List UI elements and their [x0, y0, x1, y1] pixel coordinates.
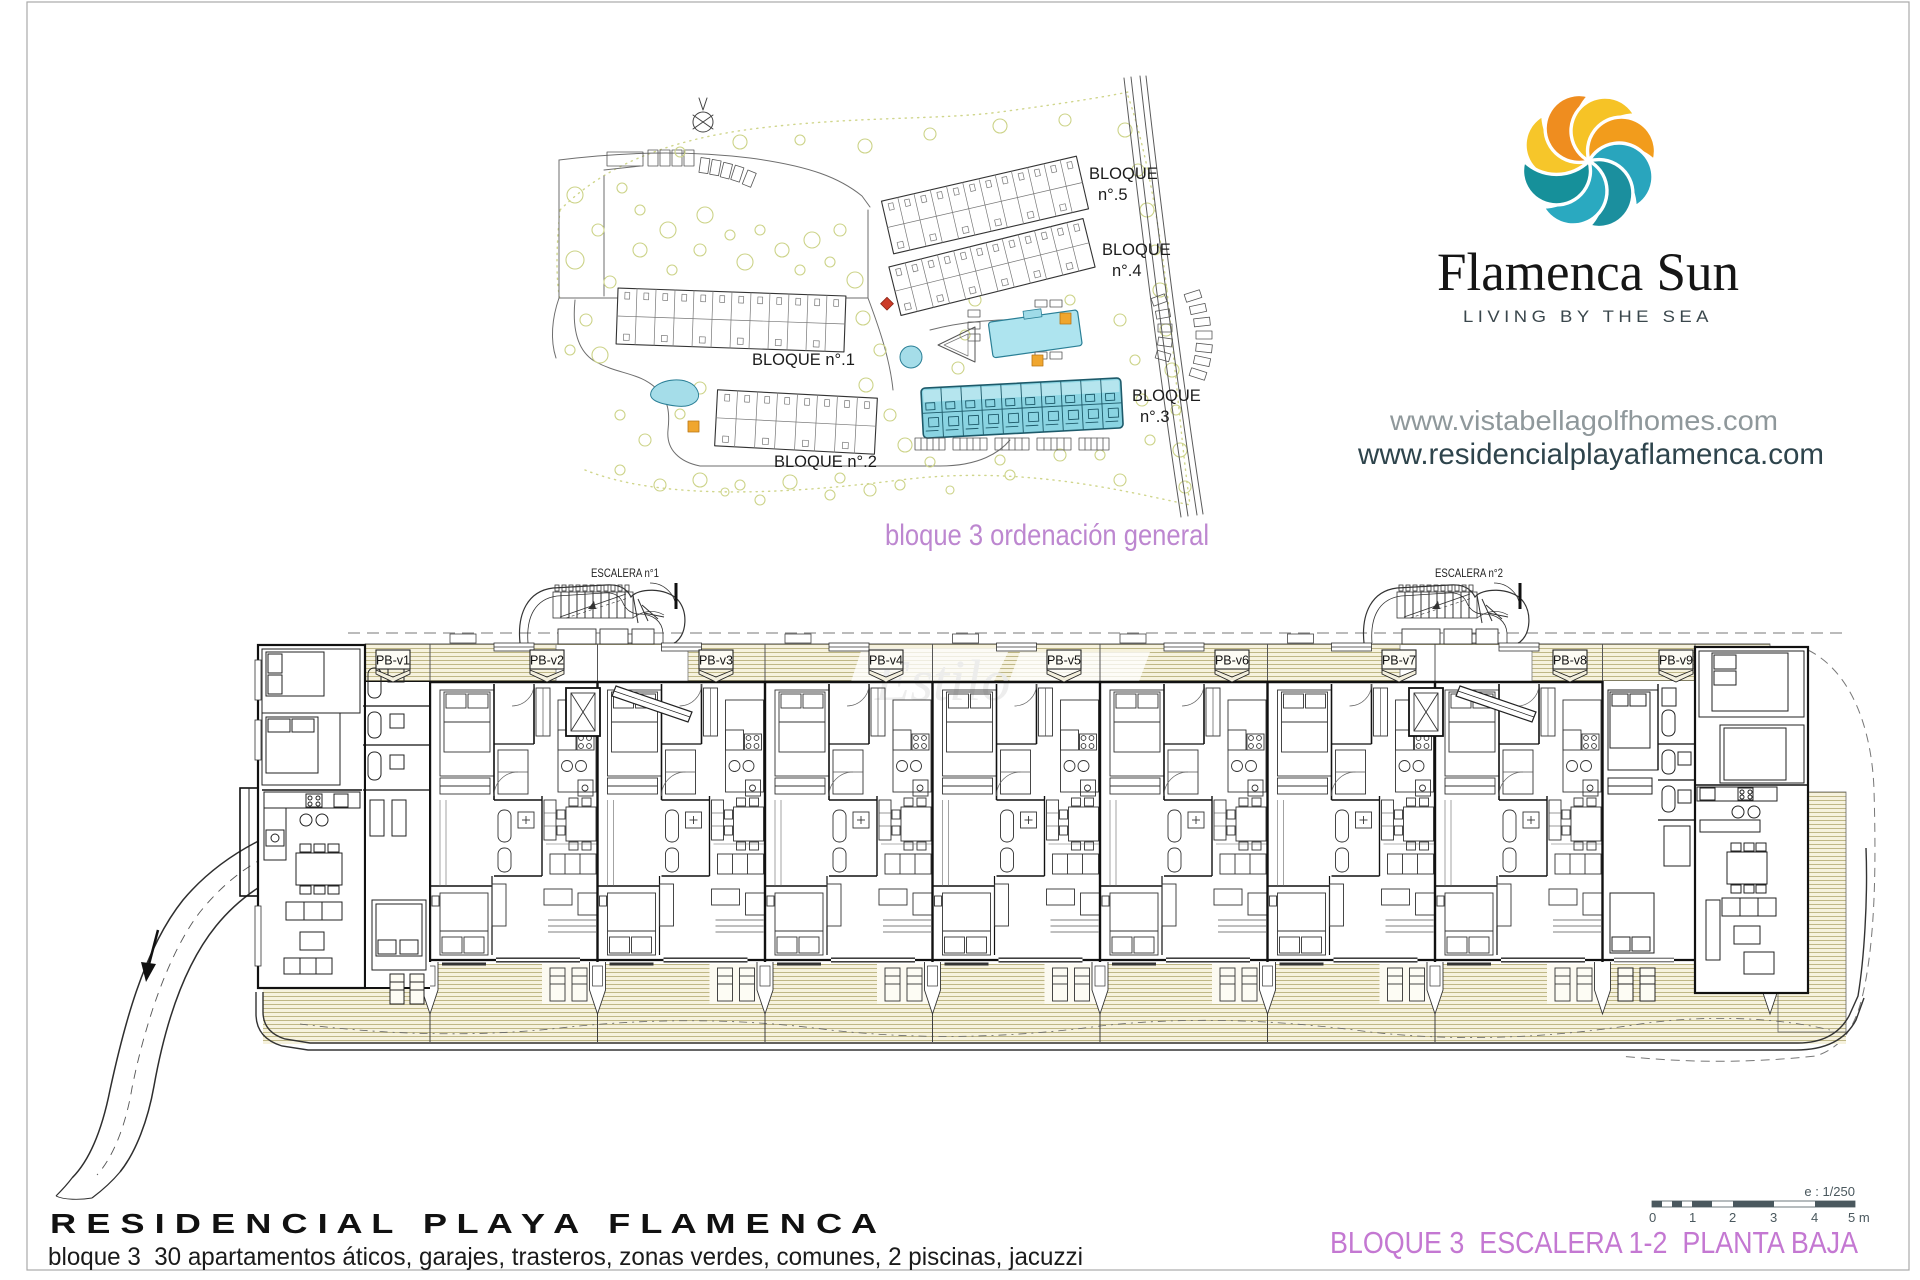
svg-text:PB-v9: PB-v9: [1659, 654, 1693, 668]
svg-text:bloque 3 ordenación general: bloque 3 ordenación general: [885, 519, 1209, 552]
svg-text:PB-v8: PB-v8: [1553, 654, 1587, 668]
svg-text:LIVING BY THE SEA: LIVING BY THE SEA: [1463, 308, 1713, 326]
svg-text:BLOQUE 3 ESCALERA 1-2 PLANTA: BLOQUE 3 ESCALERA 1-2 PLANTA BAJA: [1330, 1225, 1858, 1260]
svg-text:R E S I D E N C I A L P L A: R E S I D E N C I A L P L A Y A F L A M …: [50, 1208, 877, 1239]
svg-text:1: 1: [1689, 1210, 1696, 1225]
svg-text:ESCALERA n°2: ESCALERA n°2: [1435, 566, 1503, 580]
svg-text:PB-v3: PB-v3: [699, 654, 733, 668]
svg-text:n°.5: n°.5: [1098, 186, 1128, 204]
svg-text:PB-v2: PB-v2: [530, 654, 564, 668]
svg-text:www.residencialplayaflamenca.c: www.residencialplayaflamenca.com: [1357, 438, 1824, 471]
svg-text:BLOQUE n°.2: BLOQUE n°.2: [774, 453, 877, 471]
svg-text:ESCALERA n°1: ESCALERA n°1: [591, 566, 659, 580]
svg-text:BLOQUE: BLOQUE: [1102, 241, 1171, 259]
svg-text:PB-v1: PB-v1: [376, 654, 410, 668]
svg-text:n°.4: n°.4: [1112, 262, 1142, 280]
svg-text:Flamenca Sun: Flamenca Sun: [1437, 242, 1739, 302]
svg-text:BLOQUE n°.1: BLOQUE n°.1: [752, 351, 855, 369]
svg-text:bloque 3 30 apartamentos átic: bloque 3 30 apartamentos áticos, garajes…: [48, 1243, 1083, 1271]
svg-text:2: 2: [1729, 1210, 1736, 1225]
svg-text:3: 3: [1770, 1210, 1777, 1225]
svg-text:e : 1/250: e : 1/250: [1804, 1184, 1855, 1199]
svg-text:n°.3: n°.3: [1140, 408, 1170, 426]
svg-text:www.vistabellagolfhomes.com: www.vistabellagolfhomes.com: [1389, 405, 1778, 436]
svg-text:BLOQUE: BLOQUE: [1132, 387, 1201, 405]
svg-text:PB-v7: PB-v7: [1382, 654, 1416, 668]
svg-text:BLOQUE: BLOQUE: [1089, 165, 1158, 183]
svg-text:5 m: 5 m: [1848, 1210, 1870, 1225]
svg-text:PB-v5: PB-v5: [1047, 654, 1081, 668]
svg-text:0: 0: [1649, 1210, 1656, 1225]
svg-text:4: 4: [1811, 1210, 1818, 1225]
svg-text:PB-v4: PB-v4: [869, 654, 903, 668]
svg-text:PB-v6: PB-v6: [1215, 654, 1249, 668]
